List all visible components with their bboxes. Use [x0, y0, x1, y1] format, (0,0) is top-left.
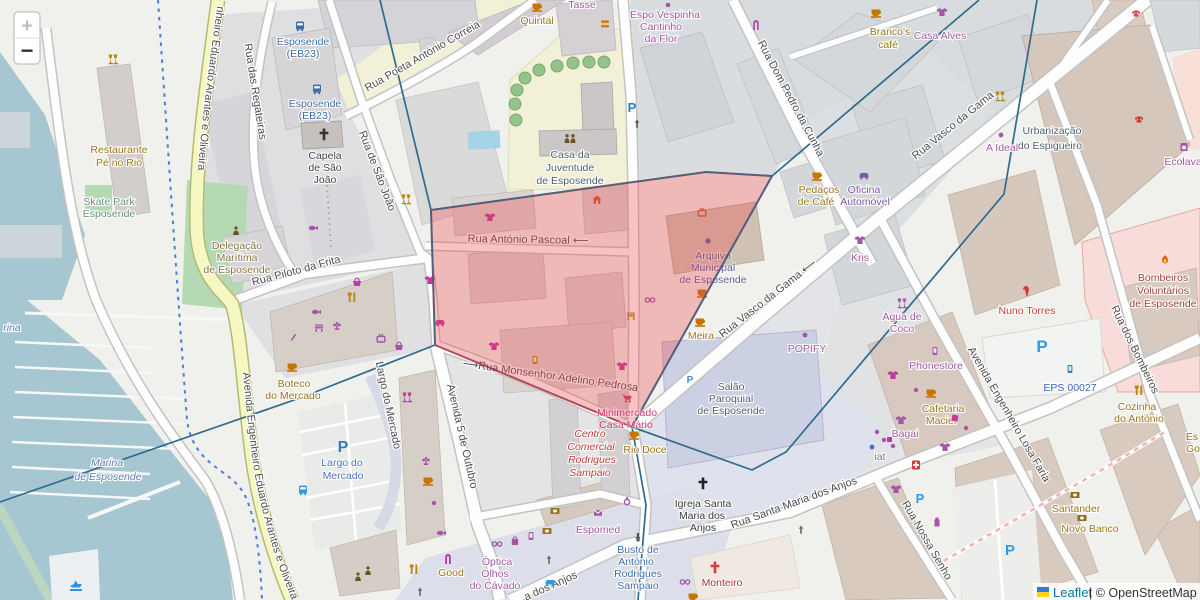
svg-text:Delegação: Delegação — [212, 240, 262, 252]
svg-text:P: P — [1005, 542, 1015, 559]
svg-text:Água de: Água de — [882, 310, 921, 323]
svg-text:Good: Good — [438, 567, 464, 579]
svg-text:P: P — [687, 375, 694, 386]
svg-text:Rodrigues: Rodrigues — [568, 454, 617, 466]
svg-text:Igreja Santa: Igreja Santa — [675, 498, 732, 510]
svg-text:iat: iat — [874, 451, 885, 463]
svg-text:EPS 00027: EPS 00027 — [1043, 382, 1096, 394]
svg-text:Cozinha: Cozinha — [1118, 401, 1157, 413]
svg-text:de Esposende: de Esposende — [536, 175, 603, 187]
svg-text:Marítima: Marítima — [217, 252, 258, 264]
svg-text:−: − — [21, 38, 34, 63]
svg-text:Marina: Marina — [91, 457, 123, 469]
svg-text:Esposende: Esposende — [83, 208, 136, 220]
svg-text:Sampaio: Sampaio — [617, 580, 659, 592]
svg-text:Comercial: Comercial — [567, 441, 615, 453]
svg-text:de Esposende: de Esposende — [203, 264, 270, 276]
svg-text:Novo Banco: Novo Banco — [1061, 523, 1118, 535]
svg-text:rina: rina — [3, 322, 21, 334]
svg-text:Automóvel: Automóvel — [840, 196, 890, 208]
svg-text:de Esposende: de Esposende — [1129, 298, 1196, 310]
svg-text:do António: do António — [1114, 413, 1164, 425]
svg-text:António: António — [618, 556, 654, 568]
svg-text:Bombeiros: Bombeiros — [1138, 272, 1188, 284]
svg-text:Skate Park: Skate Park — [83, 196, 135, 208]
svg-text:(EB23): (EB23) — [299, 110, 332, 122]
svg-text:Esposende: Esposende — [277, 36, 330, 48]
svg-text:Cafetaria: Cafetaria — [922, 403, 965, 415]
svg-text:Bagai: Bagai — [892, 428, 919, 440]
svg-text:Santander: Santander — [1052, 503, 1101, 515]
svg-text:Mercado: Mercado — [323, 470, 364, 482]
svg-text:Pé no Rio: Pé no Rio — [96, 157, 142, 169]
svg-text:P: P — [916, 491, 925, 506]
svg-text:| © OpenStreetMap: | © OpenStreetMap — [1089, 586, 1197, 600]
svg-text:do Mercado: do Mercado — [265, 390, 321, 402]
svg-text:Rio Doce: Rio Doce — [623, 444, 666, 456]
svg-text:Centro: Centro — [574, 428, 606, 440]
svg-text:Capela: Capela — [308, 150, 341, 162]
svg-text:Branco's: Branco's — [870, 26, 911, 38]
svg-text:Olhos: Olhos — [481, 568, 508, 580]
svg-text:do Espigueiro: do Espigueiro — [1018, 140, 1082, 152]
svg-text:Anjos: Anjos — [690, 522, 716, 534]
svg-text:Busto de: Busto de — [617, 544, 659, 556]
svg-text:Sampaio: Sampaio — [569, 467, 611, 479]
svg-text:Urbanização: Urbanização — [1023, 125, 1082, 137]
svg-text:Boteco: Boteco — [278, 378, 311, 390]
svg-text:Monteiro: Monteiro — [702, 577, 743, 589]
svg-text:Espo Vespinha: Espo Vespinha — [630, 9, 700, 21]
svg-text:Minimercado: Minimercado — [597, 407, 657, 419]
svg-text:+: + — [21, 16, 32, 37]
svg-text:Voluntários: Voluntários — [1137, 285, 1189, 297]
svg-text:Ecolava: Ecolava — [1164, 156, 1200, 168]
svg-text:de São: de São — [308, 162, 341, 174]
svg-text:Rodrigues: Rodrigues — [614, 568, 662, 580]
svg-text:P: P — [1036, 337, 1047, 356]
svg-text:João: João — [314, 174, 337, 186]
svg-text:de Esposende: de Esposende — [74, 471, 141, 483]
svg-text:café: café — [878, 39, 898, 51]
svg-text:Esposende: Esposende — [289, 98, 342, 110]
svg-text:Casa Alves: Casa Alves — [914, 30, 967, 42]
svg-text:Largo do: Largo do — [321, 457, 363, 469]
svg-text:Juventude: Juventude — [546, 162, 595, 174]
svg-text:(EB23): (EB23) — [287, 48, 320, 60]
svg-text:Paroquial: Paroquial — [709, 393, 753, 405]
svg-text:POPIFY: POPIFY — [788, 343, 827, 355]
svg-text:Es: Es — [1186, 431, 1198, 443]
svg-text:Quintal: Quintal — [520, 15, 553, 27]
svg-text:P: P — [338, 439, 349, 456]
svg-text:Go: Go — [1186, 443, 1200, 455]
svg-text:Nuno Torres: Nuno Torres — [998, 305, 1055, 317]
svg-text:Tasse: Tasse — [568, 0, 596, 11]
svg-text:da Flor: da Flor — [645, 33, 678, 45]
svg-text:Maciel: Maciel — [926, 415, 956, 427]
svg-text:Espomed: Espomed — [576, 524, 621, 536]
svg-text:Casa Mário: Casa Mário — [599, 419, 653, 431]
svg-text:P: P — [628, 100, 637, 115]
svg-text:Salão: Salão — [718, 381, 745, 393]
svg-text:Restaurante: Restaurante — [90, 144, 147, 156]
svg-text:de Café: de Café — [798, 196, 835, 208]
svg-text:Pedaços: Pedaços — [799, 184, 840, 196]
svg-text:do Cávado: do Cávado — [470, 580, 521, 592]
svg-text:Leaflet: Leaflet — [1053, 585, 1092, 600]
svg-text:Coco: Coco — [890, 323, 915, 335]
svg-text:Casa da: Casa da — [550, 149, 589, 161]
svg-text:Kris: Kris — [851, 252, 869, 264]
svg-text:Óptica: Óptica — [482, 555, 513, 568]
svg-text:de Esposende: de Esposende — [697, 405, 764, 417]
svg-text:Meira: Meira — [688, 330, 714, 342]
svg-text:Maria dos: Maria dos — [679, 510, 725, 522]
svg-text:Cantinho: Cantinho — [640, 21, 682, 33]
svg-text:Phonestore: Phonestore — [909, 360, 963, 372]
svg-text:Oficina: Oficina — [848, 184, 881, 196]
svg-text:A Ideal: A Ideal — [986, 142, 1018, 154]
